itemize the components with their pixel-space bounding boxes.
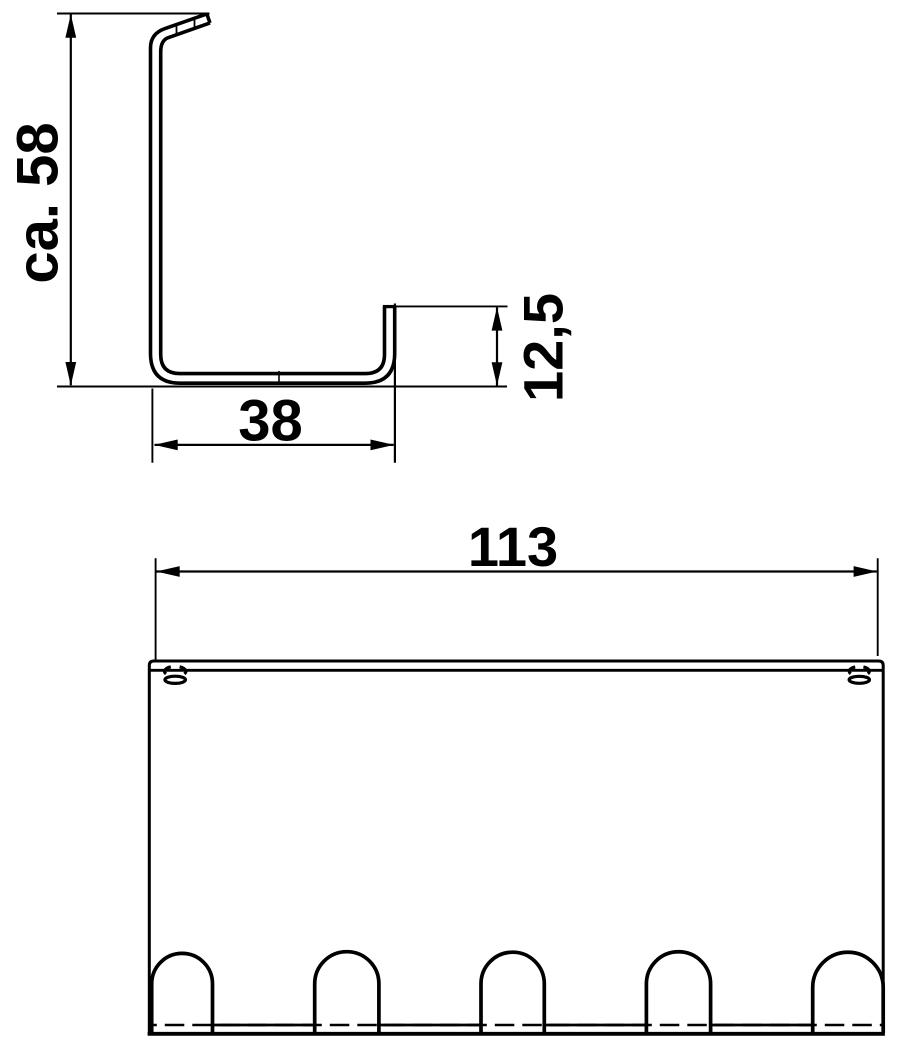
svg-text:12,5: 12,5: [512, 293, 575, 402]
svg-text:ca. 58: ca. 58: [6, 122, 71, 283]
svg-text:113: 113: [468, 515, 558, 578]
svg-text:38: 38: [238, 389, 303, 454]
